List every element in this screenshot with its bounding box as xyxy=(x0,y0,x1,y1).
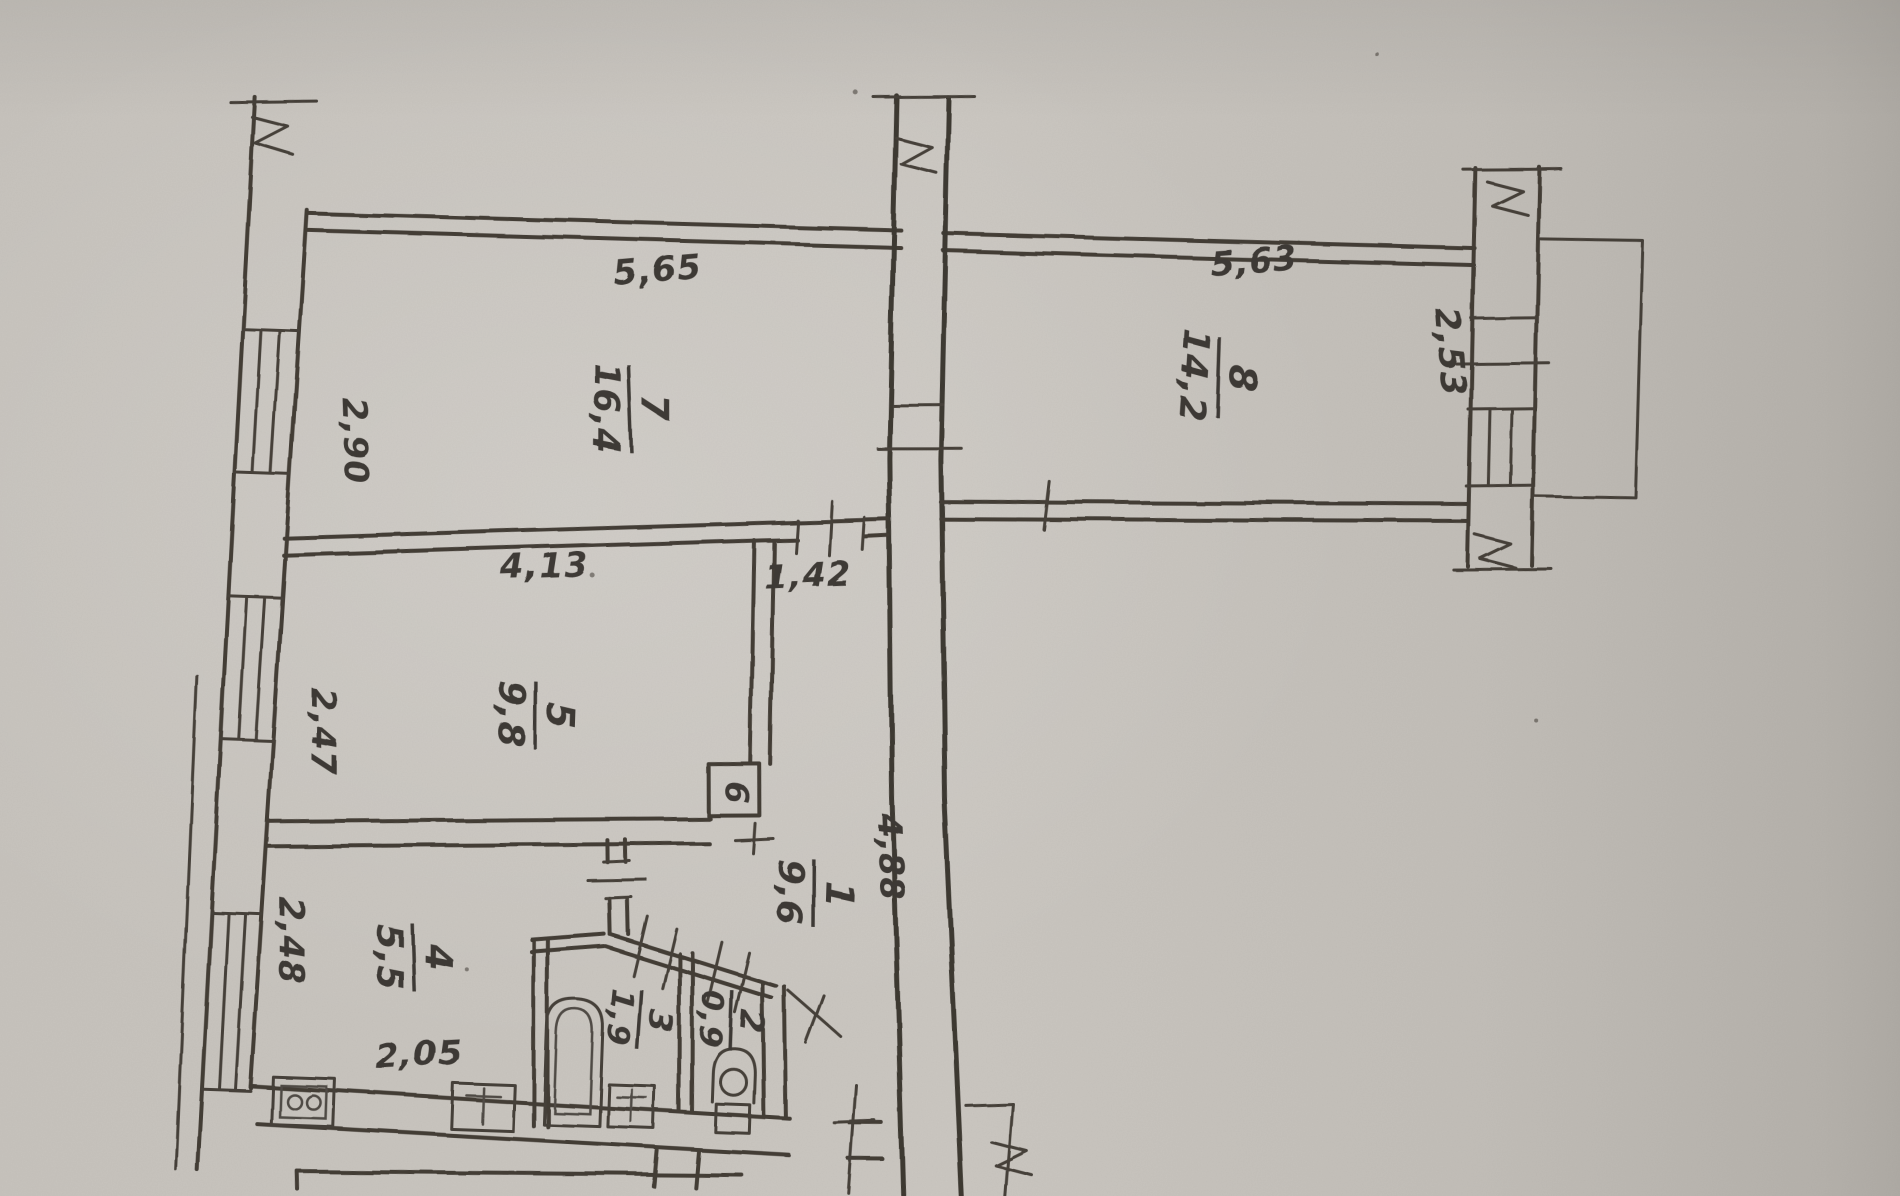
fraction-bar xyxy=(412,923,414,991)
dim-hall-opening: 1,42 xyxy=(763,555,852,598)
dim-kitchen-bottom: 2,05 xyxy=(374,1033,464,1078)
room-number: 2 xyxy=(732,1009,773,1036)
window-cap xyxy=(212,912,262,914)
room-area: 16,4 xyxy=(585,362,626,455)
fraction-bar xyxy=(811,859,815,927)
dim-hall-side: 4,88 xyxy=(868,812,911,902)
dim-room5-top: 4,13 xyxy=(500,545,590,588)
room-number: 6 xyxy=(717,780,757,805)
room-label-6: 6 xyxy=(717,780,757,805)
room-area: 9,8 xyxy=(490,681,533,749)
room-number: 3 xyxy=(640,1008,681,1036)
dim-room7-left: 2,90 xyxy=(333,396,376,485)
floor-plan-drawing: 7 16,4 8 14,2 5 9,8 1 9,6 4 5,5 3 1,9 xyxy=(0,0,1900,1196)
door-jamb xyxy=(863,518,865,550)
wall-line xyxy=(864,535,888,538)
door-jamb xyxy=(604,860,630,863)
scanned-floor-plan: 7 16,4 8 14,2 5 9,8 1 9,6 4 5,5 3 1,9 xyxy=(0,0,1900,1196)
vent-tick xyxy=(893,403,943,407)
room-number: 7 xyxy=(633,395,677,422)
room-area: 9,6 xyxy=(768,858,811,926)
room-number: 4 xyxy=(416,943,460,971)
dim-room8-top: 5,63 xyxy=(1209,238,1299,284)
room-area: 0,9 xyxy=(691,989,731,1049)
room-area: 14,2 xyxy=(1170,328,1217,423)
dim-room5-left: 2,47 xyxy=(303,688,343,776)
window-cap xyxy=(243,329,299,331)
room-area: 1,9 xyxy=(598,987,640,1048)
dim-room8-right: 2,53 xyxy=(1427,307,1473,397)
wall-line xyxy=(297,1172,299,1190)
wall-line xyxy=(848,1158,882,1160)
room-number: 1 xyxy=(816,880,861,909)
door-tick xyxy=(753,823,755,853)
window-cap xyxy=(221,739,273,741)
dim-kitchen-left: 2,48 xyxy=(271,897,311,985)
window-cap xyxy=(235,473,290,475)
dim-room7-top: 5,65 xyxy=(612,247,703,295)
room-area: 5,5 xyxy=(368,924,409,991)
door-jamb xyxy=(796,521,798,553)
window-cap xyxy=(229,596,283,598)
door-jamb xyxy=(605,896,631,899)
window-cap xyxy=(202,1089,250,1091)
paper-texture xyxy=(0,0,1900,1196)
room-number: 5 xyxy=(538,702,583,731)
fraction-bar xyxy=(534,682,538,750)
room-number: 8 xyxy=(1220,364,1266,394)
